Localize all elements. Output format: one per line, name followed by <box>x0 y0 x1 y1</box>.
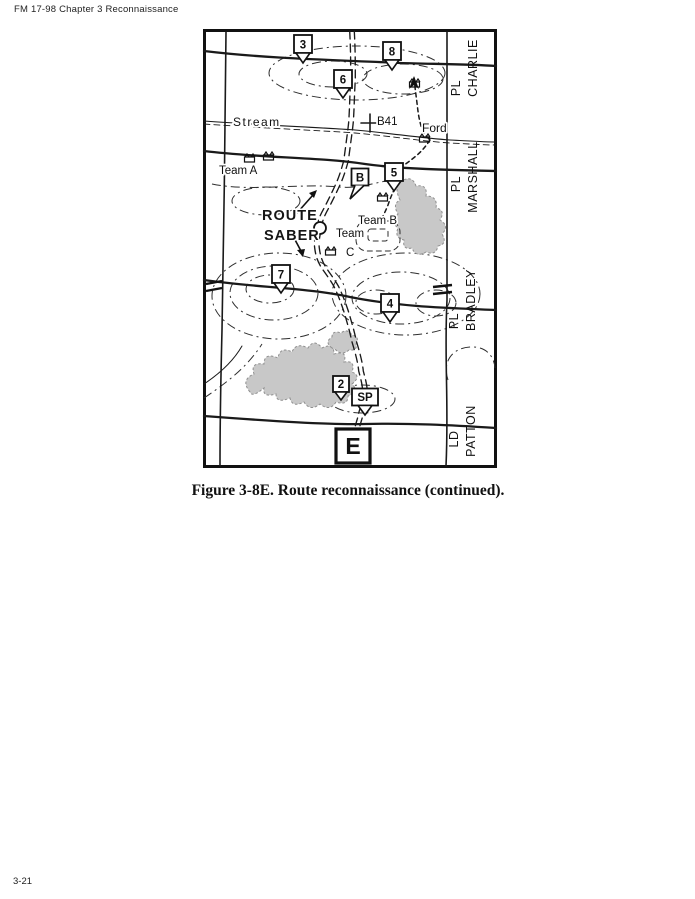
pl-name: BRADLEY <box>464 269 478 331</box>
team-a-label: Team A <box>219 165 258 177</box>
checkpoint-label: 7 <box>278 269 284 281</box>
bridge-name-label: B41 <box>377 116 397 128</box>
pl-prefix: PL <box>449 80 463 96</box>
pl-prefix: PL <box>449 176 463 192</box>
checkpoint-label: 2 <box>338 379 344 391</box>
exit-marker-label: E <box>345 433 360 459</box>
checkpoint-label: 5 <box>391 167 398 179</box>
exit-marker-e: E <box>336 429 370 463</box>
route-reconnaissance-map: 3 8 6 5 7 4 2 SP B E Stream B41 Ford Tea… <box>0 0 695 899</box>
start-point-label: SP <box>357 392 373 404</box>
checkpoint-label: 3 <box>300 39 306 51</box>
checkpoint-label: 8 <box>389 46 396 58</box>
pl-prefix: PL <box>447 313 461 329</box>
ford-label: Ford <box>422 121 447 135</box>
route-name-line2: SABER <box>264 228 320 244</box>
stream-label: Stream <box>233 115 281 129</box>
team-b-label: Team B <box>358 215 397 227</box>
pl-name: CHARLIE <box>466 39 480 97</box>
pl-prefix: LD <box>447 431 461 448</box>
checkpoint-label: 6 <box>340 74 346 86</box>
team-c-label-line1: Team <box>336 228 364 240</box>
bridge-marker-label: B <box>356 172 364 184</box>
page-number: 3-21 <box>13 876 32 887</box>
route-name-line1: ROUTE <box>262 208 318 224</box>
team-c-label-line2: C <box>346 247 354 259</box>
figure-caption: Figure 3-8E. Route reconnaissance (conti… <box>120 482 576 500</box>
pl-name: PATTON <box>464 405 478 457</box>
checkpoint-label: 4 <box>387 298 394 310</box>
pl-name: MARSHALL <box>466 141 480 212</box>
